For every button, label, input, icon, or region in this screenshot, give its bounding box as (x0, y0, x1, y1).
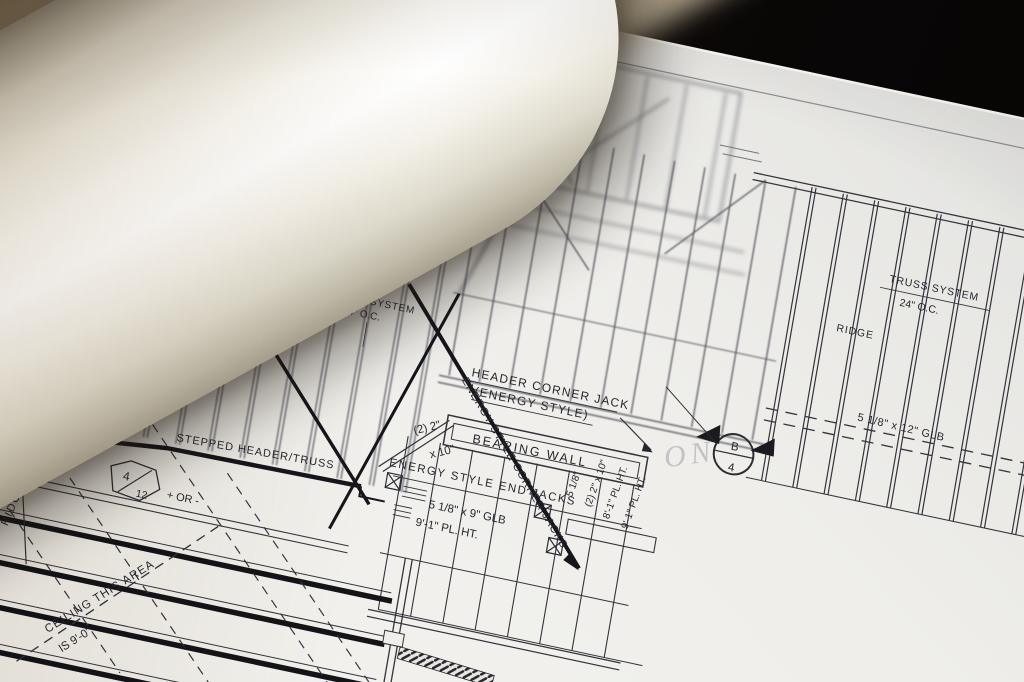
pitch-denominator: 12 (135, 489, 148, 502)
watermark-on: ON (662, 435, 718, 476)
photo-background: 4 12 + OR - B 4 HEADER CORNER JACK (ENER… (0, 0, 1024, 682)
